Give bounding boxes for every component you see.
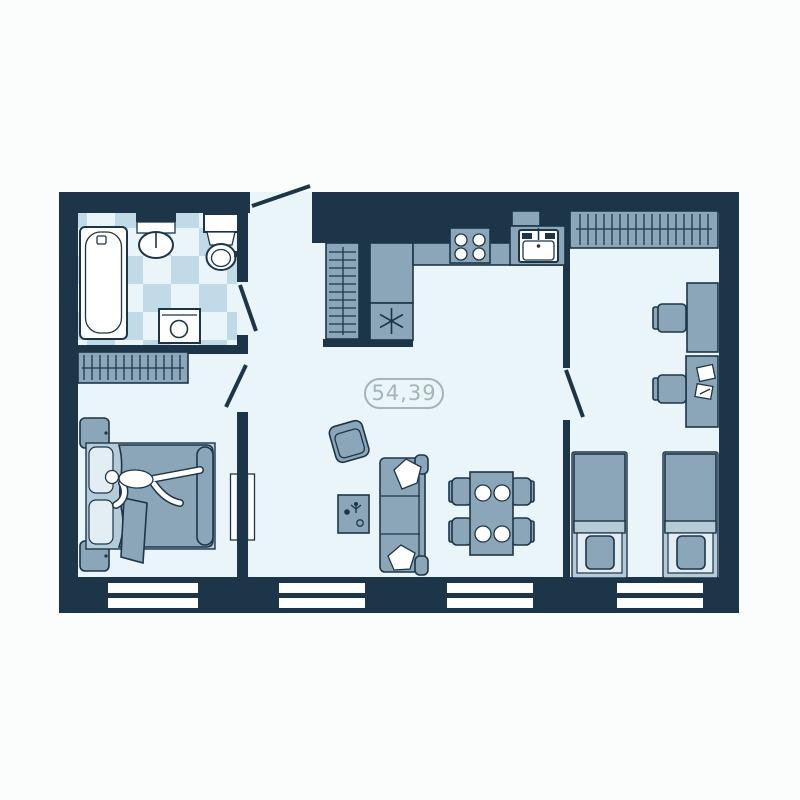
single-bed-2-icon bbox=[663, 452, 718, 578]
dining-chair-icon bbox=[449, 518, 472, 545]
dining-chair-icon bbox=[511, 478, 534, 505]
desk-icon bbox=[687, 283, 718, 352]
plate-icon bbox=[494, 526, 510, 542]
window-icon bbox=[108, 598, 198, 608]
hall-closet-icon bbox=[326, 243, 359, 339]
toilet-icon bbox=[204, 214, 238, 270]
sofa-icon bbox=[380, 455, 428, 575]
refrigerator-icon bbox=[370, 303, 413, 340]
desk-chair-2-icon bbox=[653, 375, 686, 403]
area-label: 54,39 bbox=[364, 378, 444, 409]
plate-icon bbox=[475, 485, 491, 501]
dining-chair-icon bbox=[511, 518, 534, 545]
plate-icon bbox=[475, 526, 491, 542]
plate-icon bbox=[494, 485, 510, 501]
bathtub-icon bbox=[80, 227, 127, 339]
washing-machine-icon bbox=[159, 309, 200, 343]
paper-icon bbox=[697, 364, 716, 381]
desk-chair-icon bbox=[653, 304, 686, 332]
window-icon bbox=[447, 598, 533, 608]
window-icon bbox=[279, 583, 365, 593]
window-icon bbox=[447, 583, 533, 593]
wardrobe-2-icon bbox=[570, 211, 718, 248]
window-icon bbox=[279, 598, 365, 608]
wardrobe-icon bbox=[78, 352, 188, 383]
dining-chair-icon bbox=[449, 478, 472, 505]
stove-icon bbox=[450, 228, 490, 263]
window-icon bbox=[617, 598, 703, 608]
desk-2-icon bbox=[686, 356, 718, 427]
coffee-table-icon bbox=[338, 495, 369, 533]
floorplan: 54,39 bbox=[0, 0, 800, 800]
single-bed-icon bbox=[572, 452, 627, 578]
window-icon bbox=[108, 583, 198, 593]
window-icon bbox=[617, 583, 703, 593]
double-bed-icon bbox=[86, 443, 215, 563]
